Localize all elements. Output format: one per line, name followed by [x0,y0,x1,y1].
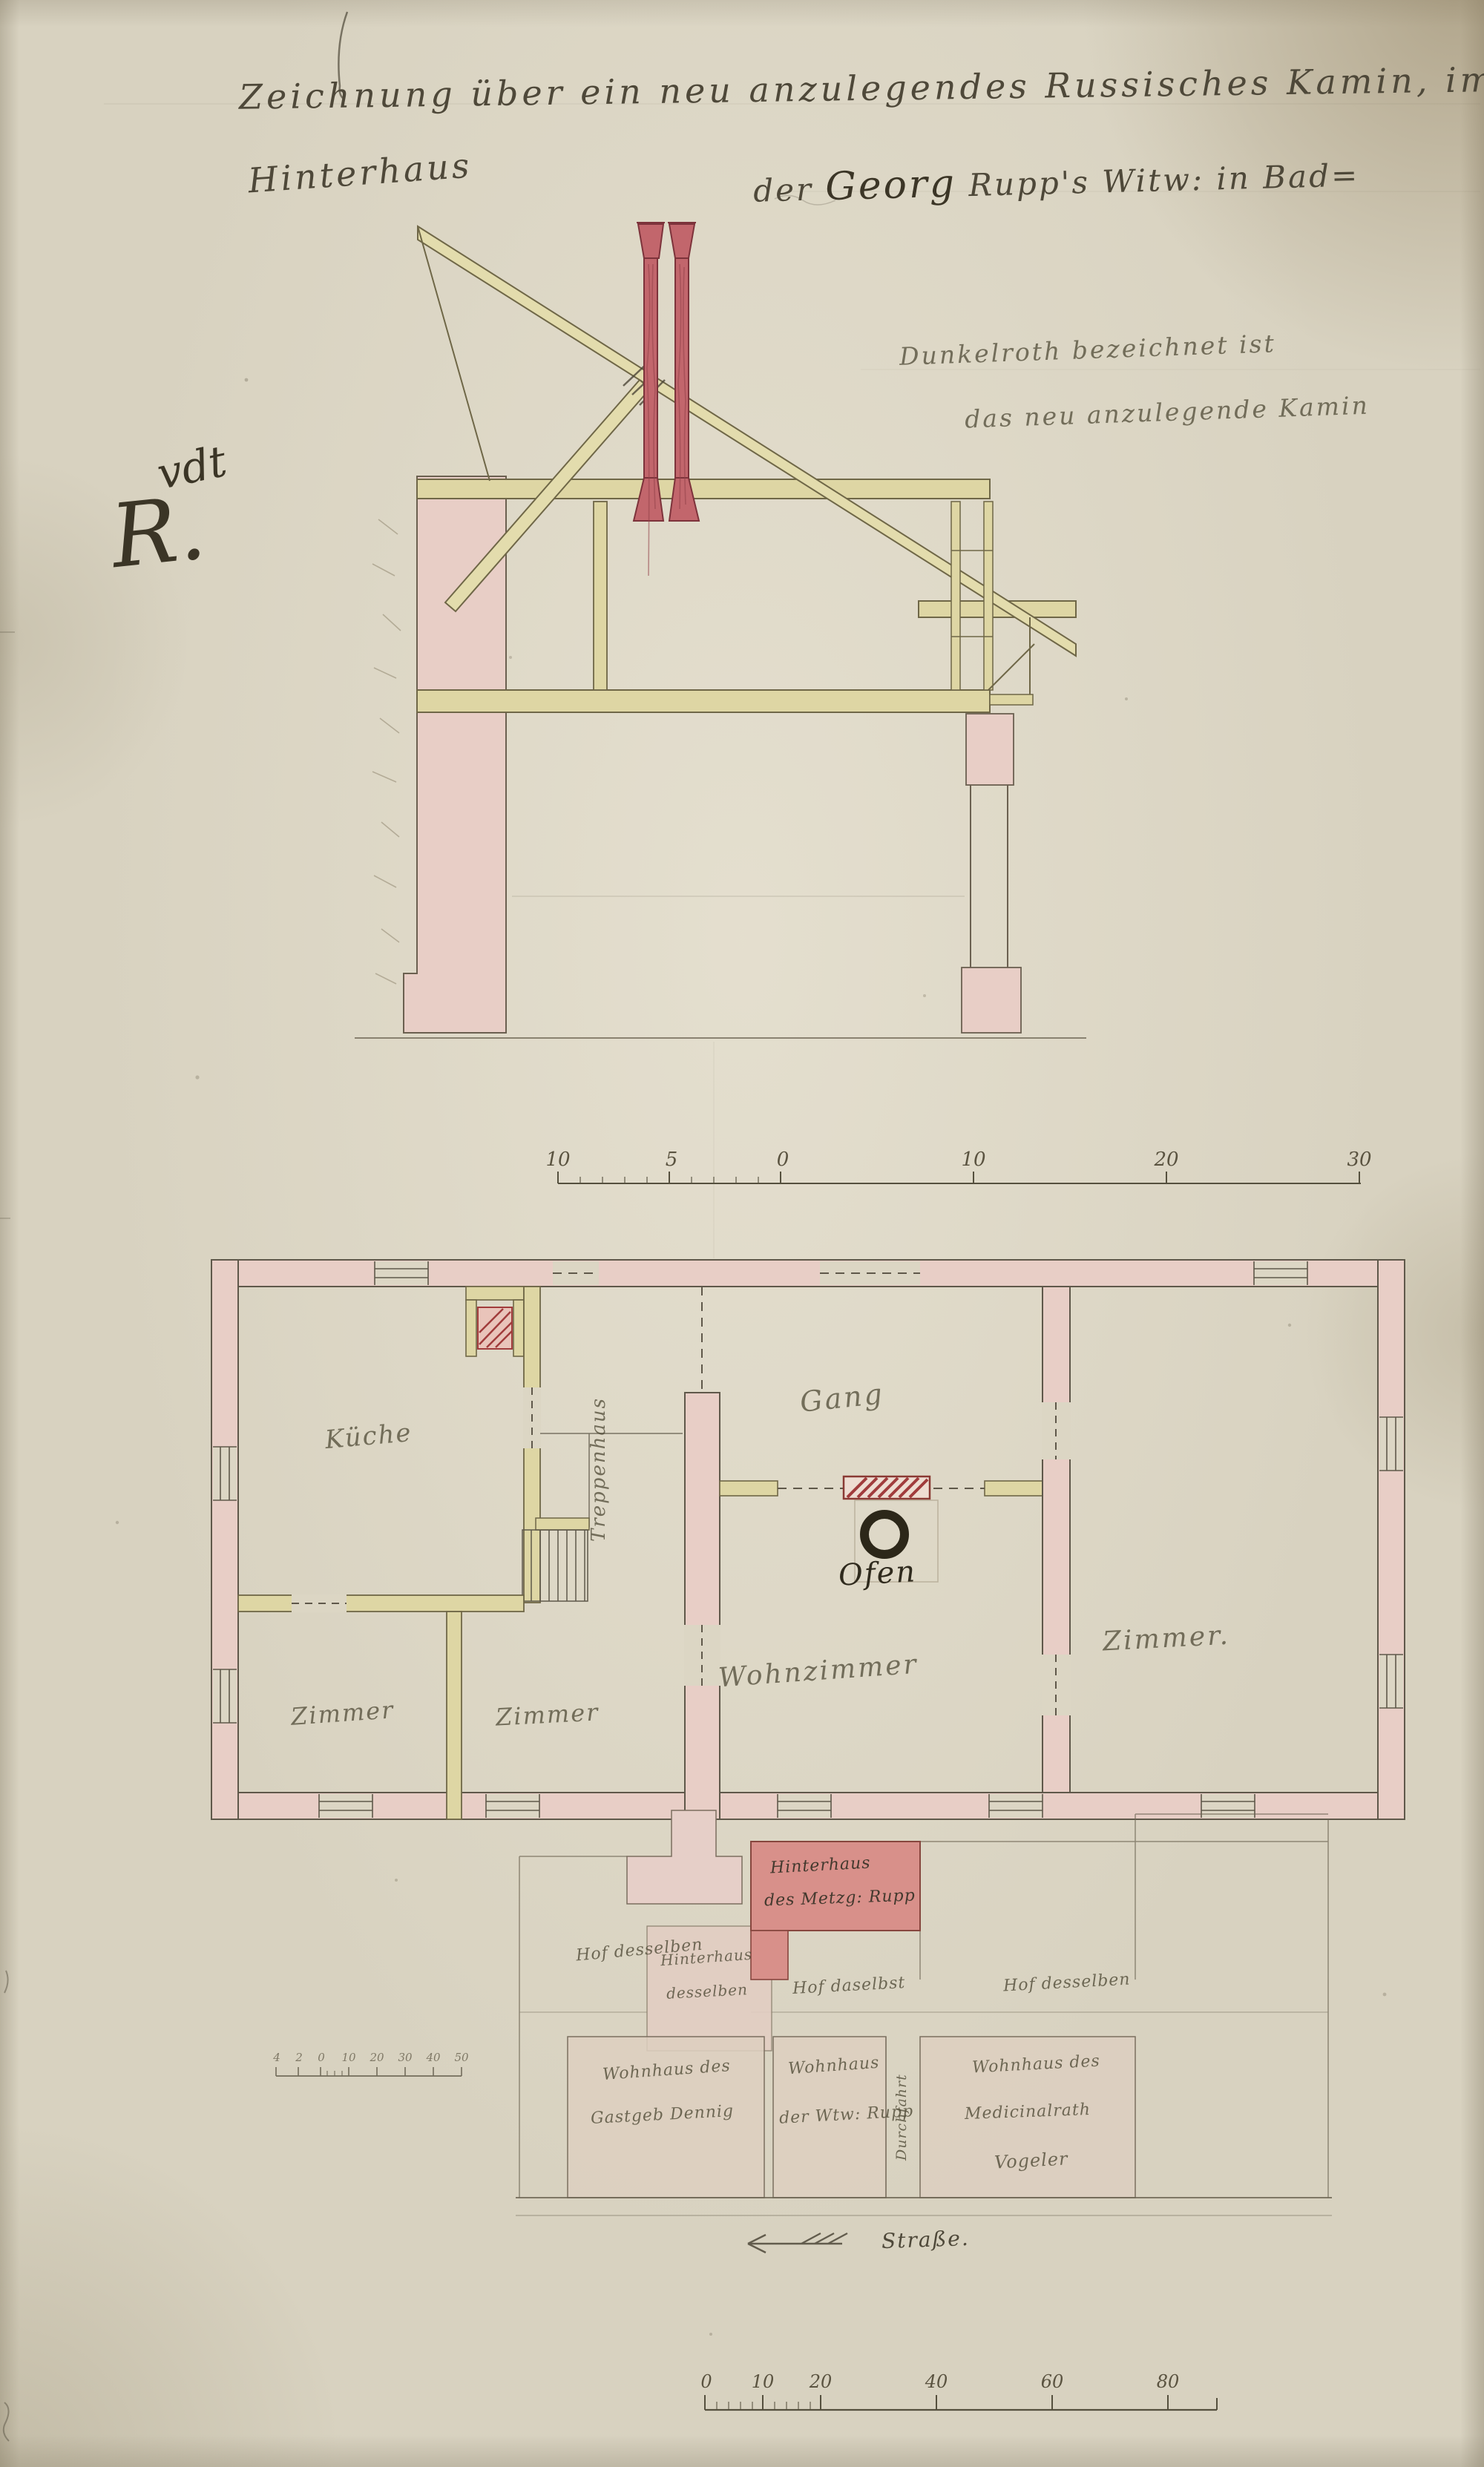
outer-walls [211,1260,1405,1819]
floor-plan [211,1260,1405,1819]
attic-floor-beam [417,479,990,499]
kitchen-chimney [466,1287,524,1356]
section-scale-0: 0 [772,1149,794,1171]
room-label-zimmer-s: Zimmer [495,1698,600,1731]
site-scale-bar [705,2395,1217,2410]
mini-scale-4: 4 [270,2051,283,2064]
mini-scale-20: 20 [367,2051,387,2064]
site-scale-60: 60 [1037,2371,1067,2392]
site-scale-10: 10 [748,2371,778,2392]
stove-pipe-circle [864,1514,904,1554]
section-scale-10r: 10 [956,1149,991,1171]
mini-scale-2: 2 [292,2051,306,2064]
stairwell-lines [540,1433,683,1527]
drawing-canvas [0,0,1484,2467]
window-post-left [951,502,960,690]
eaves-bracket [988,644,1034,690]
storey-floor-beam [417,690,990,712]
site-scale-80: 80 [1153,2371,1183,2392]
visa-initial: R. [106,476,210,588]
mini-scale-30: 30 [395,2051,415,2064]
section-scale-30: 30 [1342,1149,1377,1171]
red-block-stub [751,1931,788,1980]
mini-scale-0: 0 [315,2051,328,2064]
spine-wall [685,1393,720,1819]
wall-post [594,502,607,690]
mini-scale-50: 50 [452,2051,471,2064]
partition-south-rooms [238,1595,524,1612]
street-arrow [748,2233,847,2253]
guide-lines [104,104,1480,1258]
rubble-hatch [372,519,401,984]
site-house-right-line-3: Vogeler [994,2148,1068,2172]
margin-marks [0,632,15,2441]
room-label-ofen: Ofen [838,1554,917,1592]
wall-right-zimmer [1043,1287,1070,1793]
stair-wall [536,1518,589,1530]
section-scale-20: 20 [1149,1149,1184,1171]
floor-beam-extension [990,694,1033,705]
title-owner-suffix: Rupp's Witw: in Bad= [956,157,1359,203]
mini-scale-bar [276,2067,462,2076]
cross-section [355,195,1086,1038]
window-post-right [984,502,993,690]
site-plan [516,1810,1332,2253]
site-scale-20: 20 [806,2371,835,2392]
scanned-drawing-sheet: Zeichnung über ein neu anzulegendes Russ… [0,0,1484,2467]
title-owner-prefix: der [753,171,826,209]
title-owner-name: Georg [824,162,956,210]
site-lane-label: Durchfahrt [893,2074,910,2161]
mini-scale-40: 40 [424,2051,443,2064]
site-scale-40: 40 [922,2371,951,2392]
section-scale-10l: 10 [540,1149,576,1171]
street-label: Straße. [881,2226,970,2253]
site-scale-0: 0 [693,2371,720,2392]
chimney-section [634,223,699,521]
roof-rafter [418,226,1076,656]
section-scale-bar [558,1172,1361,1183]
room-label-treppenhaus: Treppenhaus [588,1397,610,1542]
new-chimney-plan [844,1476,930,1499]
mini-scale-10: 10 [339,2051,358,2064]
section-scale-5: 5 [660,1149,683,1171]
right-wall-head [966,714,1014,785]
right-wall-lines [971,785,1008,968]
rear-wing [627,1810,742,1904]
partition-zimmer [447,1612,462,1819]
right-wall-footing [962,968,1021,1033]
